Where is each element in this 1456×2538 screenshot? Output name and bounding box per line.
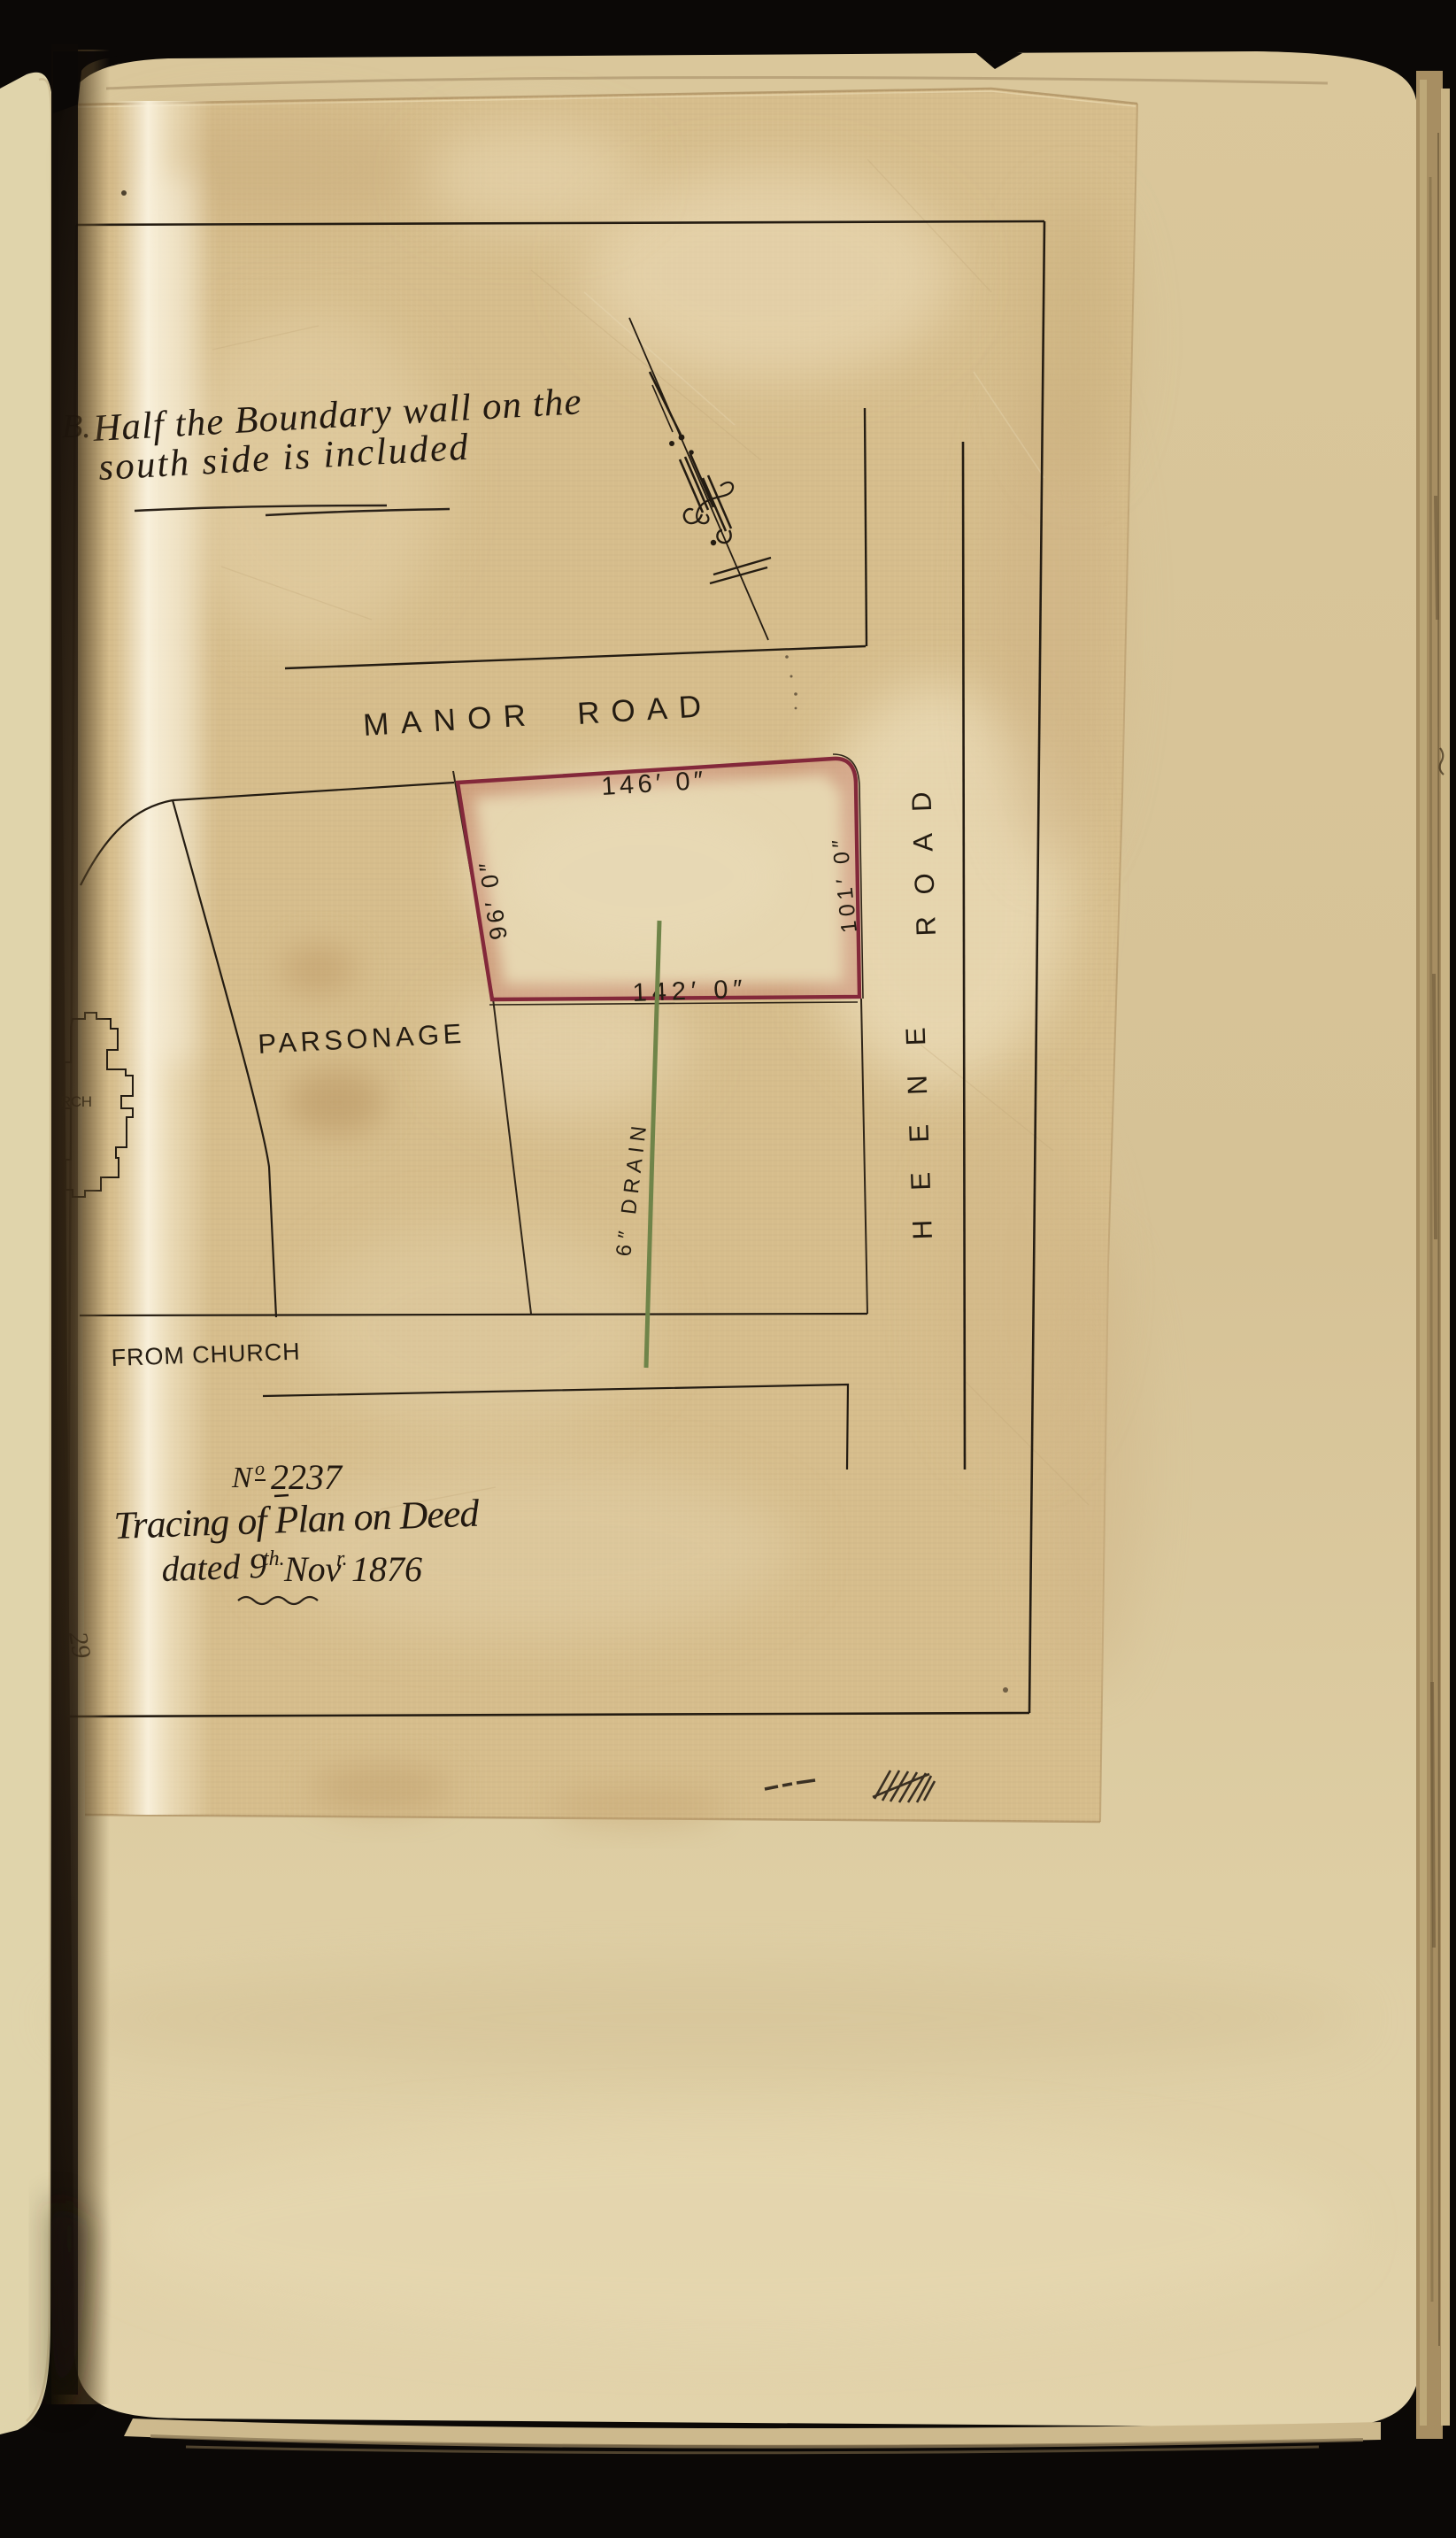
svg-text:dated 9: dated 9	[161, 1546, 267, 1589]
svg-text:Nov: Nov	[283, 1549, 342, 1589]
svg-text:2237: 2237	[271, 1457, 343, 1497]
svg-text:1876: 1876	[351, 1549, 422, 1589]
svg-text:r.: r.	[336, 1547, 348, 1570]
svg-text:N: N	[231, 1462, 254, 1494]
svg-text:o: o	[255, 1457, 265, 1479]
svg-text:th.: th.	[263, 1547, 285, 1570]
